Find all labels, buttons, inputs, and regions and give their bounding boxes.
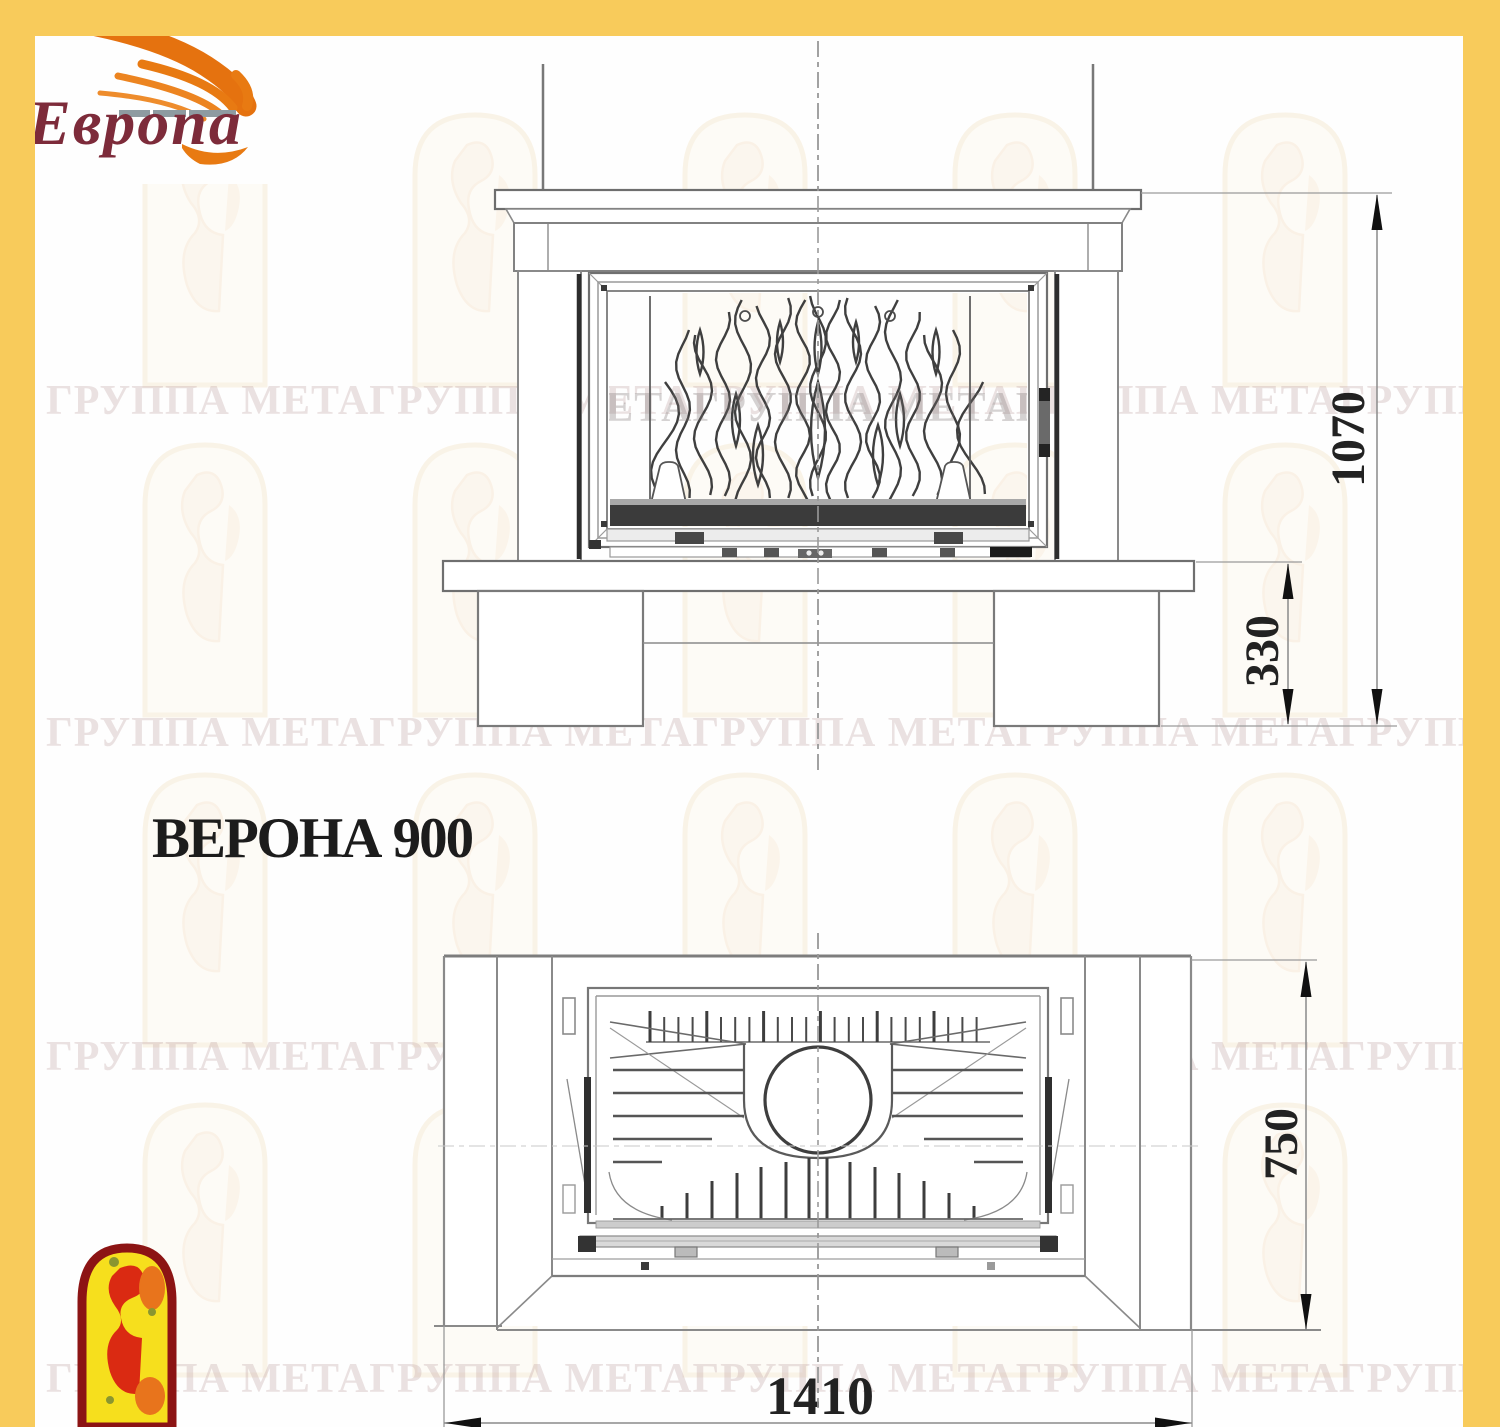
- svg-text:1410: 1410: [766, 1366, 874, 1426]
- svg-text:1070: 1070: [1322, 391, 1375, 487]
- svg-text:330: 330: [1236, 615, 1289, 687]
- svg-text:ВЕРОНА 900: ВЕРОНА 900: [152, 807, 473, 870]
- svg-text:Европа: Европа: [27, 87, 243, 158]
- svg-text:750: 750: [1255, 1108, 1308, 1180]
- svg-text:ГРУППА МЕТАГРУППА МЕТАГРУППА М: ГРУППА МЕТАГРУППА МЕТАГРУППА МЕТАГРУППА …: [46, 385, 1500, 431]
